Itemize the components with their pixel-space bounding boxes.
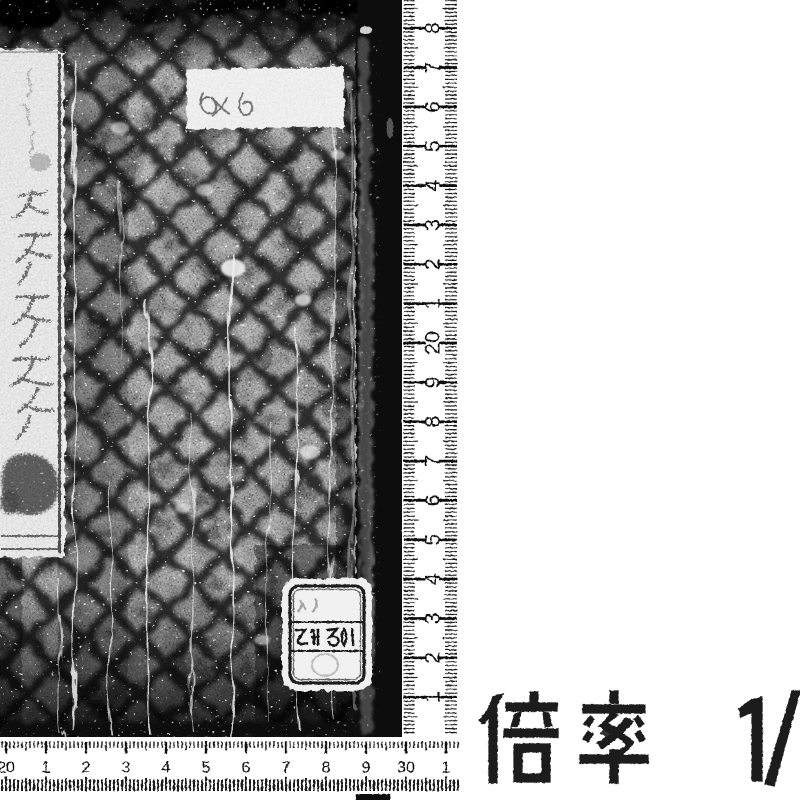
svg-text:5: 5 [202,760,211,777]
svg-text:8: 8 [421,22,445,34]
svg-text:6: 6 [421,101,445,113]
svg-text:7: 7 [282,760,291,777]
svg-text:7: 7 [421,62,445,74]
svg-text:7: 7 [421,455,445,467]
svg-text:6: 6 [242,760,251,777]
svg-text:5: 5 [421,534,445,546]
svg-text:6: 6 [421,494,445,506]
svg-text:3: 3 [421,612,445,624]
svg-text:1: 1 [421,691,445,703]
svg-text:4: 4 [421,573,445,585]
svg-text:1: 1 [442,760,451,777]
svg-text:9: 9 [362,760,371,777]
svg-text:2: 2 [82,760,91,777]
svg-text:4: 4 [162,760,171,777]
svg-text:8: 8 [421,416,445,428]
svg-text:3: 3 [421,219,445,231]
svg-text:2: 2 [421,258,445,270]
svg-text:20: 20 [0,760,15,777]
svg-text:4: 4 [421,180,445,192]
svg-text:2: 2 [421,652,445,664]
svg-text:3: 3 [122,760,131,777]
svg-text:20: 20 [421,331,445,355]
svg-text:30: 30 [397,760,415,777]
svg-text:1: 1 [421,298,445,310]
svg-text:1: 1 [42,760,51,777]
svg-text:5: 5 [421,140,445,152]
svg-text:8: 8 [322,760,331,777]
svg-text:9: 9 [421,376,445,388]
